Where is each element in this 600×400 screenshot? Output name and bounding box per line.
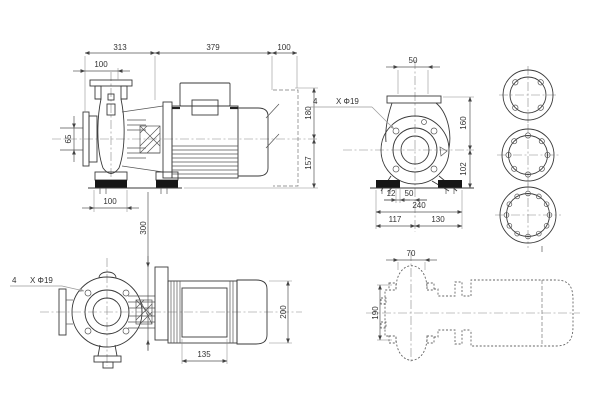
dim-50: 50 (409, 56, 418, 65)
dim-100-flange: 100 (94, 60, 108, 69)
front-holes-label: 4 X Φ19 (310, 97, 394, 129)
outline-dim-190: 190 (371, 285, 392, 340)
dim-70: 70 (407, 249, 416, 258)
technical-drawing-page: 313 379 100 100 65 100 (0, 0, 600, 400)
flange-mid-8holes (497, 124, 559, 186)
outline-view: 70 190 (366, 246, 580, 362)
phantom-port-arc-top (396, 266, 427, 289)
plan-holes-label: 4 X Φ19 (10, 276, 84, 291)
side-dim-suction: 65 (64, 116, 74, 162)
plan-view: 4 X Φ19 300 135 200 (10, 192, 302, 368)
front-dim-port: 50 (386, 56, 440, 94)
fan-cover (238, 108, 268, 176)
dim-313: 313 (113, 43, 127, 52)
flange-top-4holes (499, 66, 557, 124)
side-dim-base: 100 (82, 190, 139, 212)
holes-size: X Φ19 (336, 97, 359, 106)
holes-qty: 4 (313, 97, 318, 106)
pump-foot-pad (95, 180, 127, 188)
pump-dimension-drawing: 313 379 100 100 65 100 (0, 0, 600, 400)
plan-motor-flange (155, 267, 168, 340)
holes-qty: 4 (12, 276, 17, 285)
plan-bolt-hole (85, 290, 91, 296)
flange-details (495, 66, 561, 248)
discharge-port-flange (387, 96, 441, 103)
dim-200: 200 (279, 305, 288, 319)
plan-terminal-box (182, 288, 227, 337)
dim-12: 12 (387, 189, 396, 198)
dim-180: 180 (304, 106, 313, 120)
dim-130: 130 (431, 215, 445, 224)
terminal-box (180, 83, 230, 106)
dim-50b: 50 (405, 189, 414, 198)
dim-157: 157 (304, 156, 313, 170)
phantom-bracket-bottom (434, 330, 471, 344)
hidden-motor-extension (273, 90, 298, 186)
side-dim-row1: 313 379 100 (85, 43, 297, 112)
front-view: 4 X Φ19 50 160 102 (310, 56, 474, 232)
coupling-hatch (140, 126, 160, 153)
dim-300: 300 (139, 221, 148, 235)
dim-190: 190 (371, 306, 380, 320)
holes-size: X Φ19 (30, 276, 53, 285)
dim-379: 379 (206, 43, 220, 52)
dim-100-base: 100 (103, 197, 117, 206)
dim-160: 160 (459, 116, 468, 130)
outline-dim-70: 70 (386, 249, 437, 270)
motor-body (172, 106, 238, 178)
side-view: 313 379 100 100 65 100 (52, 43, 318, 212)
flange-bottom-12holes (495, 182, 561, 248)
motor-stool (163, 102, 172, 178)
dim-240: 240 (412, 201, 426, 210)
dim-65: 65 (64, 134, 73, 143)
motor-foot-pad (156, 180, 178, 188)
dim-135: 135 (197, 350, 211, 359)
front-dim-heights: 160 102 (443, 97, 474, 188)
dim-100-end: 100 (277, 43, 291, 52)
side-dim-flange: 100 (73, 60, 130, 80)
plan-dim-300: 300 (139, 192, 148, 351)
front-dim-feet: 12 50 240 117 130 (376, 189, 462, 229)
phantom-port-arc-bottom (396, 337, 427, 360)
dim-117: 117 (389, 215, 402, 224)
motor-fins (172, 146, 238, 174)
phantom-bracket-top (434, 282, 471, 296)
dim-102: 102 (459, 162, 468, 176)
nameplate-mark (440, 147, 447, 156)
